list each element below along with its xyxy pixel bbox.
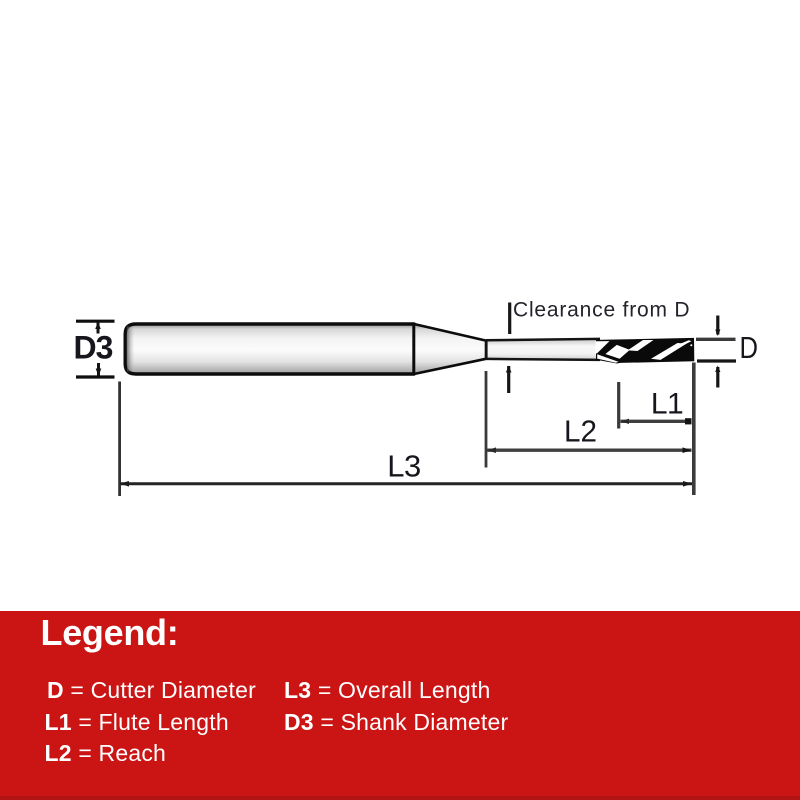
- svg-text:D3: D3: [74, 330, 113, 366]
- svg-text:D: D: [740, 330, 759, 365]
- svg-text:L2: L2: [564, 414, 597, 449]
- svg-text:L1: L1: [651, 388, 683, 421]
- svg-text:L3: L3: [387, 449, 420, 484]
- svg-text:Clearance from D: Clearance from D: [513, 299, 690, 322]
